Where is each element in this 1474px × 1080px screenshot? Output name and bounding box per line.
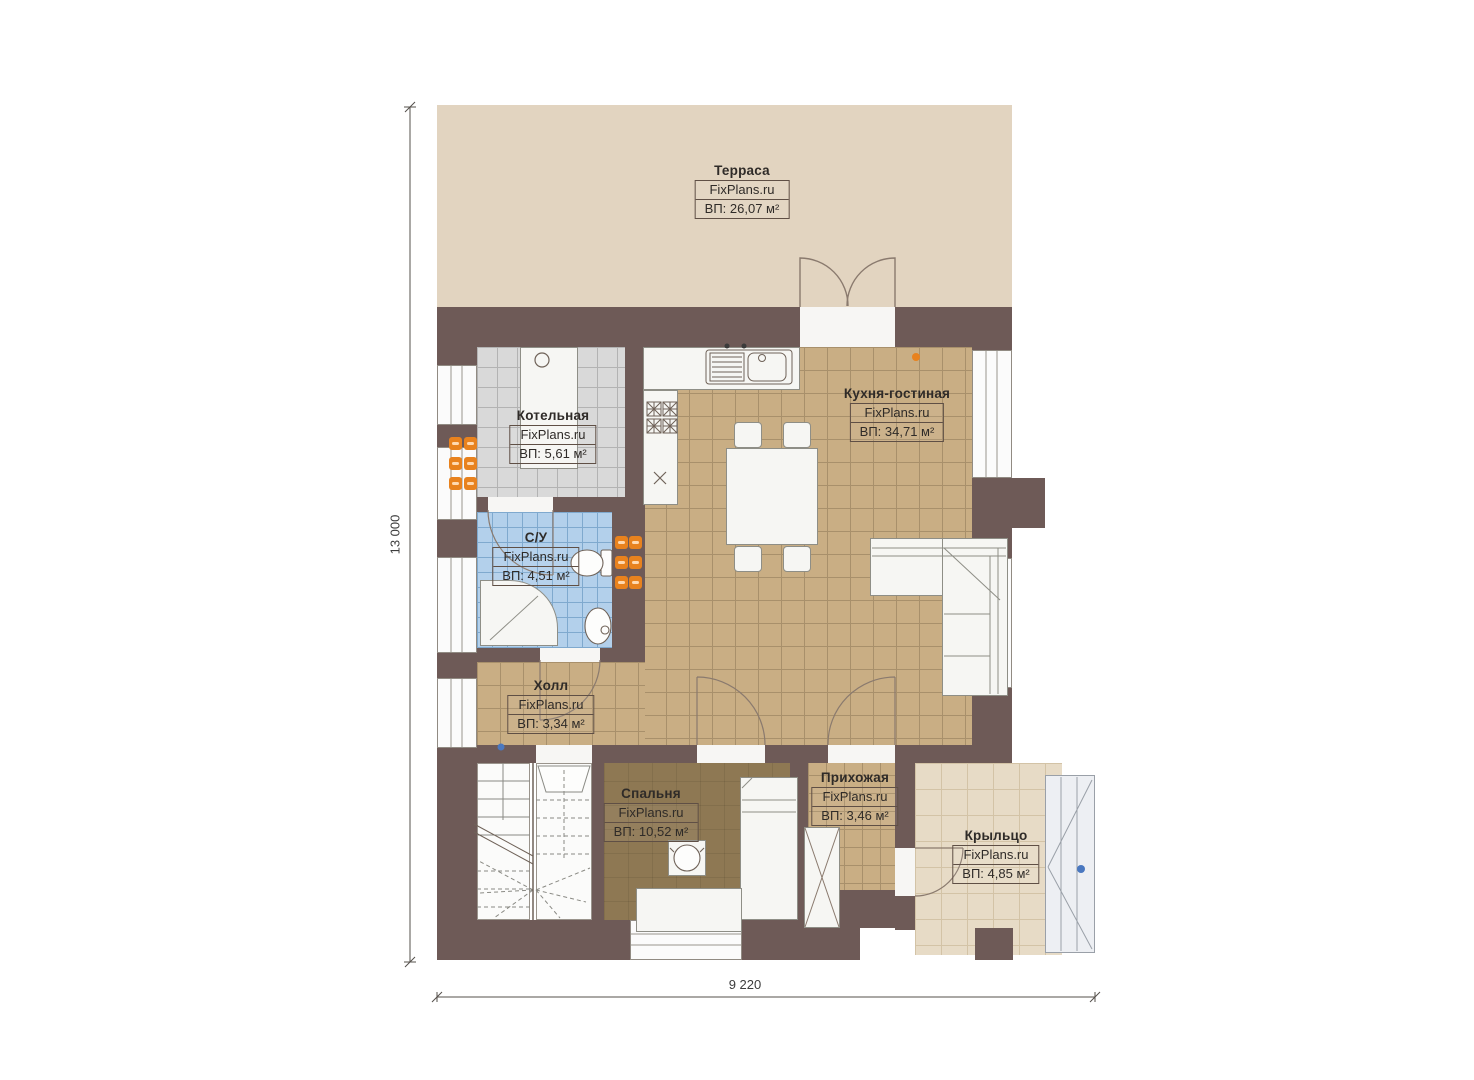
floor-plan-page: Терраса FixPlans.ru ВП: 26,07 м² Котельн… [0,0,1474,1080]
bathroom-door-opening [488,497,553,512]
sofa-vertical [942,538,1008,696]
label-terrace: Терраса FixPlans.ru ВП: 26,07 м² [695,163,790,219]
dresser [636,888,742,932]
wall-top [437,307,1012,347]
watermark: FixPlans.ru [696,181,789,200]
watermark: FixPlans.ru [605,804,698,823]
watermark: FixPlans.ru [812,788,897,807]
wall-bottom [437,920,810,960]
dimension-vertical: 13 000 [388,505,403,565]
room-name: Кухня-гостиная [844,386,950,401]
label-boiler: Котельная FixPlans.ru ВП: 5,61 м² [509,408,596,464]
chair [734,546,762,572]
room-area: ВП: 10,52 м² [605,823,698,841]
room-name: Терраса [695,163,790,178]
label-porch: Крыльцо FixPlans.ru ВП: 4,85 м² [952,828,1039,884]
room-name: Холл [507,678,594,693]
room-name: Крыльцо [952,828,1039,843]
watermark: FixPlans.ru [508,696,593,715]
bedroom-door-opening [697,745,765,763]
window-left-1 [437,365,477,425]
label-bathroom: С/У FixPlans.ru ВП: 4,51 м² [492,530,579,586]
room-area: ВП: 3,34 м² [508,715,593,733]
room-area: ВП: 34,71 м² [851,423,944,441]
label-kitchen-living: Кухня-гостиная FixPlans.ru ВП: 34,71 м² [844,386,950,442]
room-name: С/У [492,530,579,545]
wall-porch-sw [808,928,860,960]
stair-flight-right [536,763,592,920]
room-name: Прихожая [811,770,898,785]
entry-door-opening [828,745,895,763]
stairs-opening [536,745,592,763]
wall-bathroom-right [612,500,645,660]
room-name: Спальня [604,786,699,801]
nightstand [668,840,706,876]
terrace-door-opening [800,307,895,347]
chair [734,422,762,448]
label-entry-hall: Прихожая FixPlans.ru ВП: 3,46 м² [811,770,898,826]
stair-flight-left [477,763,530,920]
window-left-4 [437,678,477,748]
kitchen-counter-left [643,390,678,505]
dining-table [726,448,818,545]
wall-chimney [1012,478,1045,528]
room-name: Котельная [509,408,596,423]
wall-boiler-kitchen [625,347,643,505]
watermark: FixPlans.ru [851,404,944,423]
hall-door-opening [540,648,600,662]
room-area: ВП: 3,46 м² [812,807,897,825]
kitchen-counter-top [643,347,800,390]
window-right-1 [972,350,1012,478]
room-area: ВП: 5,61 м² [510,445,595,463]
porch-door-opening [895,848,915,896]
dimension-horizontal: 9 220 [700,977,790,992]
label-hall: Холл FixPlans.ru ВП: 3,34 м² [507,678,594,734]
watermark: FixPlans.ru [510,426,595,445]
room-area: ВП: 4,51 м² [493,567,578,585]
wall-porch-block [975,928,1013,960]
chair [783,422,811,448]
label-bedroom: Спальня FixPlans.ru ВП: 10,52 м² [604,786,699,842]
watermark: FixPlans.ru [953,846,1038,865]
watermark: FixPlans.ru [493,548,578,567]
room-area: ВП: 26,07 м² [696,200,789,218]
bed [740,777,798,920]
wall-stairs-bedroom [592,757,604,920]
wardrobe [804,827,840,928]
window-left-2 [437,447,477,520]
room-area: ВП: 4,85 м² [953,865,1038,883]
chair [783,546,811,572]
window-left-3 [437,557,477,653]
porch-steps [1045,775,1095,953]
